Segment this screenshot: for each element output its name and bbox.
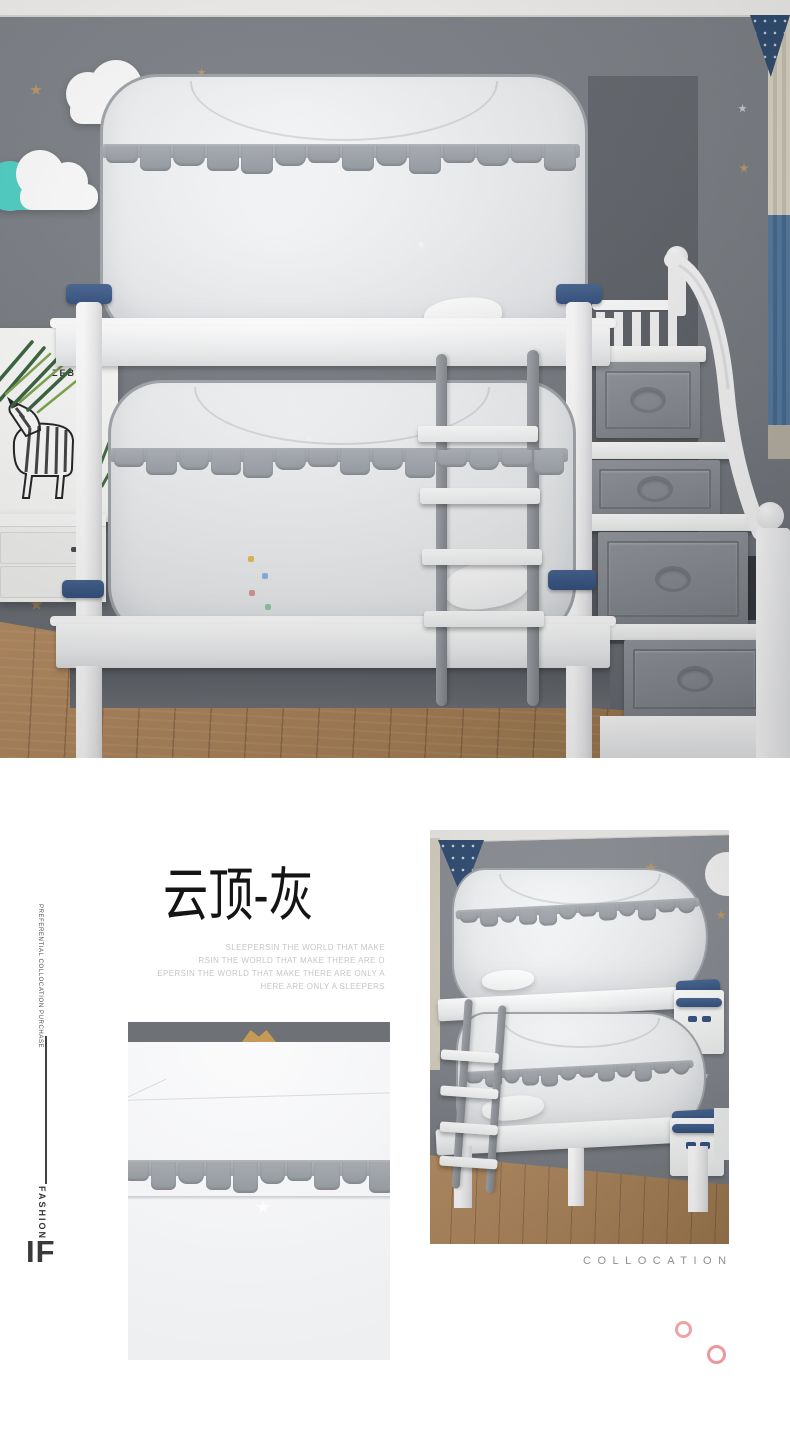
ladder-step [422,549,542,565]
ladder-rail [527,350,539,706]
newel-ball [756,502,784,530]
bed-leg [76,666,102,758]
tagline-line: RSIN THE WORLD THAT MAKE THERE ARE O [157,954,385,967]
net-ruffle [106,146,576,176]
bed-leg [566,666,592,758]
net-ruffle [128,1162,390,1196]
net-sticker [265,604,271,610]
ring-icon [675,1321,692,1338]
product-title: 云顶-灰 [163,848,314,932]
star-icon [30,84,42,96]
bed-leg [568,1148,584,1206]
ceiling [0,0,790,17]
fashion-label: FASHION [37,1186,47,1240]
ladder [431,997,524,1197]
tagline-block: SLEEPERSIN THE WORLD THAT MAKE RSIN THE … [157,941,385,993]
stair-drawer [624,640,766,718]
tagline-line: HERE ARE ONLY A SLEEPERS [157,980,385,993]
navy-corner-cap [556,284,602,304]
curtain-beige [430,838,440,1070]
star-icon [738,104,747,113]
net-ruffle [114,450,564,480]
tagline-line: SLEEPERSIN THE WORLD THAT MAKE [157,941,385,954]
navy-corner-cap [548,570,596,590]
ruffle-shadow [128,1196,390,1200]
star-icon [716,910,726,920]
net-sticker [262,573,268,579]
detail-closeup-card [128,1022,390,1360]
sidebar-vertical-text: PREFERENTIAL COLLOCATION PURCHASE [37,904,43,1026]
ladder-rail [436,354,447,706]
detail-net-surface [128,1042,390,1360]
collocation-label: COLLOCATION [583,1255,733,1267]
moon-lamp-icon [705,852,729,896]
tagline-line: EPERSIN THE WORLD THAT MAKE THERE ARE ON… [157,967,385,980]
product-page: ZEBRA [0,0,790,1433]
divider-line [45,1036,47,1184]
bed-leg [688,1146,708,1212]
navy-corner-cap [62,580,104,598]
net-sticker [248,556,254,562]
cloud-teal-icon [0,144,106,220]
ring-icon [707,1345,726,1364]
stair-tread [606,624,780,640]
collocation-photo [430,830,729,1244]
if-label: IF [26,1234,56,1270]
mosquito-net-top [100,74,588,342]
star-icon [739,163,749,173]
navy-corner-cap [66,284,112,304]
hero-photo: ZEBRA [0,0,790,758]
net-sticker [249,590,255,596]
ladder-step [424,611,544,627]
newel-post [756,528,790,758]
ladder-step [418,426,538,442]
ladder-step [420,488,540,504]
side-table [714,1108,729,1160]
